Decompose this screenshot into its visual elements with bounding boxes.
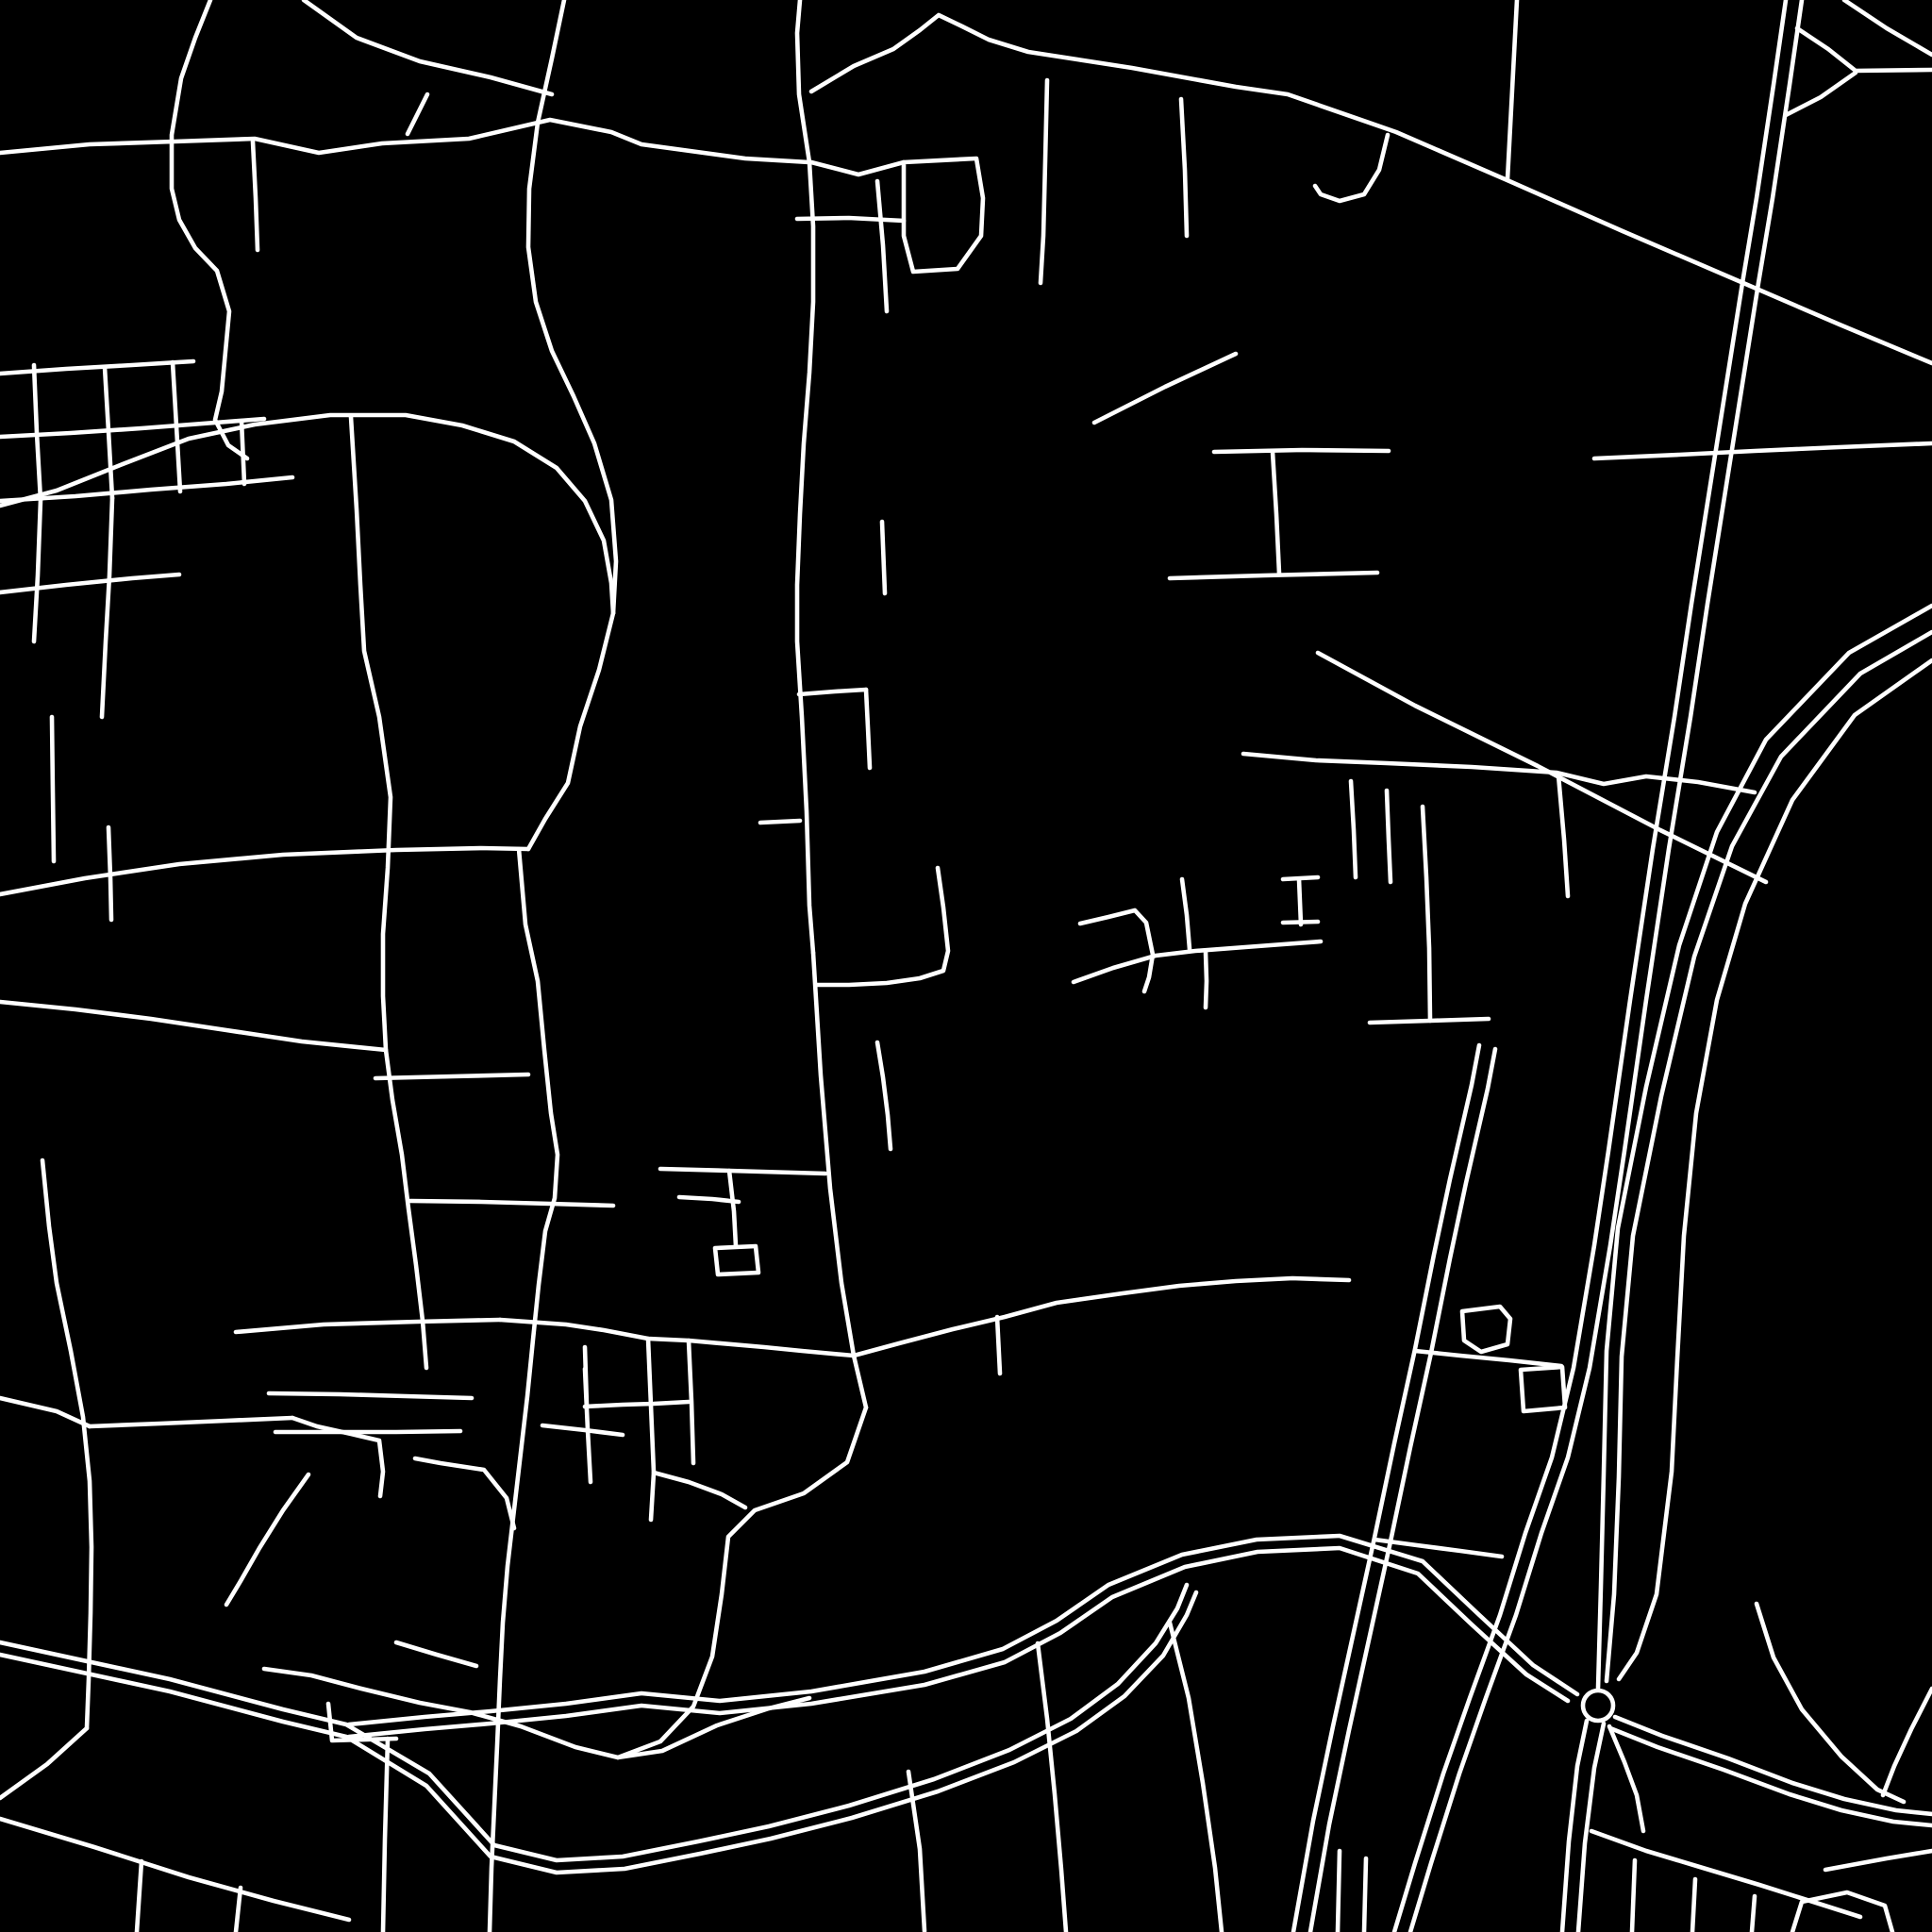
village-v4 — [689, 1341, 693, 1463]
nw-grid-v6 — [102, 498, 112, 717]
bl-stub-2 — [236, 1888, 241, 1932]
roundabout — [1583, 1690, 1613, 1721]
south-bypass-line-b — [0, 1592, 1196, 1873]
roundabout-se-link — [1609, 1726, 1643, 1831]
divided-road-east-a — [1615, 1717, 1932, 1814]
right-edge-curve — [1883, 1689, 1932, 1795]
bl-diag-tail — [0, 1728, 87, 1798]
cluster-j-road — [817, 868, 948, 985]
sweep-tail — [528, 613, 613, 849]
ramp-triangle-bottom — [1786, 73, 1856, 115]
mid-block-c — [1283, 922, 1318, 923]
bl-long-vert — [42, 1160, 92, 1728]
village-low — [396, 1642, 476, 1666]
top-vert-1255 — [1181, 99, 1187, 236]
village-v2 — [648, 1339, 654, 1520]
left-ns-road-2 — [490, 849, 558, 1932]
cluster-v2 — [1206, 952, 1207, 1008]
south-street-1100 — [1038, 1643, 1066, 1932]
village-top-street — [500, 1320, 854, 1356]
village-wiggle — [415, 1458, 514, 1528]
mid-vert-1432 — [1351, 781, 1356, 877]
small-rect-block — [1521, 1367, 1565, 1411]
stub-below-wavy — [1558, 775, 1568, 896]
village-v3 — [585, 1347, 587, 1406]
nw-grid-v5 — [34, 500, 41, 641]
mid-vert-1470 — [1387, 791, 1391, 882]
ne-corner-stub — [1844, 0, 1932, 55]
artery-rung-733 — [799, 690, 866, 694]
village-h5 — [585, 1402, 689, 1407]
map-viewport — [0, 0, 1932, 1932]
artery-stub-918 — [866, 690, 870, 768]
central-artery-mid — [797, 162, 813, 953]
road-network-map — [0, 0, 1932, 1932]
mid-box-760 — [715, 1246, 758, 1274]
highway-east-ramp — [1619, 660, 1932, 1679]
nw-c-curve — [172, 0, 247, 458]
top-stub-1600 — [1507, 0, 1517, 179]
central-artery-low — [813, 953, 866, 1407]
br-horiz — [1825, 1851, 1932, 1870]
east-vertical-1350 — [1273, 452, 1279, 574]
center-stub-935 — [882, 522, 885, 593]
mid-vert-775 — [729, 1171, 736, 1246]
south-street-1240 — [1170, 1623, 1222, 1932]
mid-rung-1270 — [679, 1197, 739, 1202]
slant-stub-2 — [1364, 1858, 1366, 1932]
ramp-triangle-top — [1797, 28, 1932, 71]
slant-street-b — [1310, 1049, 1495, 1932]
left-ew-948 — [0, 848, 528, 894]
top-vert-930 — [877, 181, 887, 311]
mid-horiz-1273 — [410, 1201, 613, 1206]
roundabout-south-a — [1562, 1721, 1587, 1932]
left-edge-street-628 — [0, 575, 179, 592]
east-horizontal-478 — [1214, 450, 1389, 452]
cross-street-480 — [1594, 443, 1932, 458]
top-arc — [304, 0, 552, 94]
hook-street-1430 — [1315, 135, 1388, 201]
left-ew-1062 — [0, 1002, 386, 1050]
bl-edge-1482 — [0, 1398, 90, 1426]
br-stub-1 — [1632, 1860, 1635, 1932]
village-h3 — [275, 1431, 460, 1432]
village-h2 — [269, 1393, 472, 1398]
east-horizontal-612 — [1170, 573, 1377, 578]
top-vert-268 — [253, 142, 258, 250]
nw-grid-v4 — [241, 421, 244, 484]
top-y-stub — [408, 94, 427, 134]
rect-link — [811, 162, 904, 175]
mid-horiz-1082 — [1370, 1019, 1489, 1023]
top-vert-1108 — [1041, 80, 1047, 283]
ne-short-diagonal — [1094, 354, 1236, 423]
roundabout-south-b — [1578, 1724, 1604, 1932]
bl-hook — [292, 1418, 383, 1496]
rect-rung-232 — [797, 218, 904, 221]
highway-east-line-a — [1598, 606, 1932, 1689]
cluster-hook — [1080, 910, 1153, 991]
cluster-v1 — [1182, 879, 1190, 949]
east-diagonal — [1318, 653, 1766, 882]
village-link — [654, 1473, 745, 1507]
mid-street-1240 — [660, 1169, 825, 1174]
top-rect-loop — [904, 158, 983, 272]
village-curve — [226, 1474, 308, 1605]
left-vert-115 — [108, 827, 111, 920]
right-hook-curve — [1757, 1604, 1904, 1802]
bl-horiz-1510 — [90, 1418, 292, 1426]
artery-rung-871 — [760, 821, 800, 823]
slant-cross-1 — [1415, 1351, 1561, 1366]
cluster-v3 — [877, 1042, 891, 1149]
mid-block-b — [1299, 879, 1301, 924]
village-h4 — [542, 1425, 623, 1435]
br-stub-3 — [1752, 1896, 1755, 1932]
central-artery-top — [797, 0, 809, 162]
south-bypass-line-a — [0, 1585, 1187, 1860]
slant-stub-1 — [1338, 1851, 1340, 1932]
top-wavy-ew — [0, 120, 809, 162]
cluster-diagonal — [1074, 941, 1321, 982]
nw-grid-h3 — [0, 477, 292, 501]
bl-vert-408 — [383, 1739, 388, 1932]
mid-stub-1057 — [997, 1317, 1000, 1374]
left-vert-55 — [52, 717, 54, 861]
village-h-top — [236, 1320, 500, 1332]
br-stub-2 — [1692, 1879, 1695, 1932]
bl-low-diag — [0, 1819, 349, 1920]
mid-horiz-1143 — [375, 1074, 528, 1078]
mid-wavy-1370 — [854, 1278, 1349, 1356]
highway-east-line-b — [1607, 632, 1932, 1681]
left-ns-road — [351, 417, 426, 1368]
nw-grid-h1 — [0, 361, 193, 374]
pentagon-loop — [1462, 1307, 1510, 1352]
bl-stub-1 — [137, 1861, 142, 1932]
mid-vert-1510 — [1423, 807, 1430, 1021]
